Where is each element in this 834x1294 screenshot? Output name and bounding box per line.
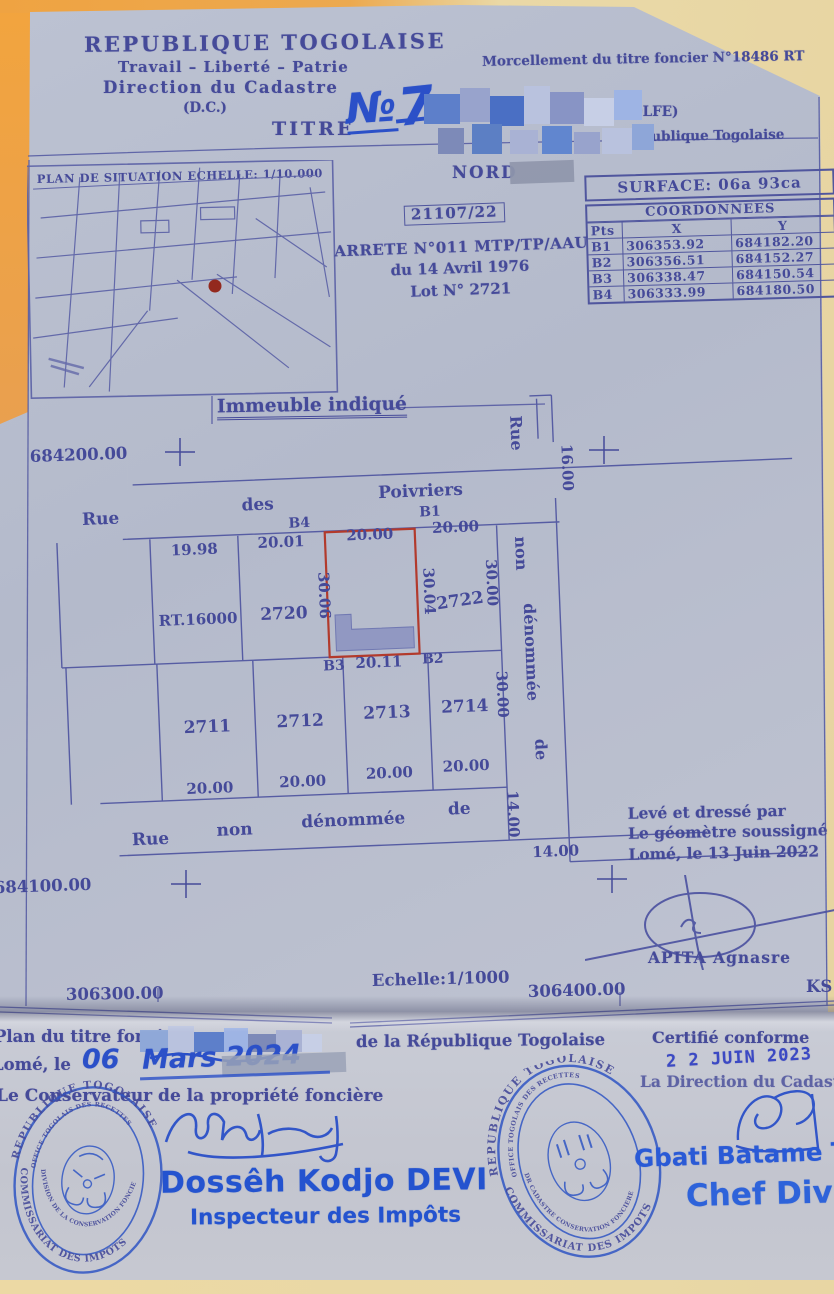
chef-division: Chef Division Cada	[686, 1172, 834, 1213]
arrete-line2: du 14 Avril 1976	[335, 256, 585, 280]
titre-label: TITRE	[272, 120, 354, 140]
dim-30-00-right: 30.00	[492, 670, 512, 718]
devi-name: Dossêh Kodjo DEVI	[160, 1164, 488, 1199]
dim-20-00-r2: 20.00	[186, 778, 234, 798]
dim-20-00-r2: 20.00	[442, 756, 490, 776]
street-top-poivriers: Poivriers	[378, 480, 463, 503]
building-footprint	[335, 612, 414, 651]
certifie-conforme: Certifié conforme	[652, 1030, 809, 1047]
cell-x: 306353.92	[622, 235, 731, 253]
redaction-box-nord	[510, 160, 575, 184]
cell-y: 684180.50	[732, 281, 834, 299]
map-red-dot	[209, 280, 222, 293]
cell-pt: B2	[588, 254, 622, 270]
dim-20-00: 20.00	[432, 517, 480, 537]
dim-16-00: 16.00	[557, 444, 577, 492]
lot-2714: 2714	[441, 696, 489, 718]
coordinates-block: SURFACE: 06a 93ca COORDONNEES Pts X Y B1…	[584, 169, 834, 305]
street-top-des: des	[241, 494, 274, 515]
lot-2720: 2720	[260, 603, 308, 625]
cell-x: 306333.99	[623, 283, 732, 301]
dossier-number: 21107/22	[404, 202, 505, 225]
street-top-rue: Rue	[82, 509, 120, 530]
surveyor-name: APITA Agnasre	[648, 950, 791, 966]
header-pts: Pts	[588, 222, 622, 238]
dim-20-00-r2: 20.00	[366, 763, 414, 783]
street-right-rue: Rue	[506, 415, 526, 451]
scale-label: Echelle:1/1000	[372, 967, 510, 990]
motto: Travail – Liberté – Patrie	[118, 60, 349, 76]
surface-box: SURFACE: 06a 93ca	[584, 169, 834, 202]
de-la-republique: de la République Togolaise	[356, 1031, 605, 1050]
lot-2712: 2712	[276, 710, 324, 732]
lot-2711: 2711	[183, 716, 231, 738]
point-b4: B4	[288, 515, 310, 532]
dc-abbr: (D.C.)	[183, 101, 227, 115]
redaction-mosaic-title	[424, 84, 664, 162]
dim-19-98: 19.98	[170, 540, 218, 560]
cell-x: 306338.47	[623, 267, 732, 285]
cell-x: 306356.51	[622, 251, 731, 269]
street-right-non: non	[511, 536, 531, 571]
surveyor-line3: Lomé, le 13 Juin 2022	[628, 843, 828, 863]
lot-2722: 2722	[435, 588, 485, 615]
dim-14-00-bottom: 14.00	[532, 841, 580, 861]
cell-pt: B3	[589, 270, 623, 286]
tick-ks: KS	[806, 977, 832, 996]
arrete-block: ARRETE N°011 MTP/TP/AAU du 14 Avril 1976…	[334, 236, 586, 303]
devi-title: Inspecteur des Impôts	[190, 1205, 461, 1230]
dim-20-11: 20.11	[355, 652, 403, 672]
header-x: X	[622, 219, 731, 237]
dim-30-00: 30.00	[482, 559, 502, 607]
nord-label: NORD	[452, 164, 517, 181]
tick-684200: 684200.00	[29, 444, 127, 466]
devi-signature	[158, 1100, 388, 1170]
cell-pt: B4	[589, 286, 623, 302]
handwritten-day: 06	[82, 1046, 120, 1074]
titre-number-no: №	[344, 84, 398, 135]
dim-30-06: 30.06	[314, 572, 334, 620]
situation-map: PLAN DE SITUATION ECHELLE: 1/10.000	[27, 160, 339, 400]
cell-y: 684150.54	[732, 265, 834, 283]
dim-30-04: 30.04	[419, 567, 439, 615]
surveyor-line2: Le géomètre soussigné	[628, 823, 828, 843]
header-y: Y	[731, 217, 834, 235]
dim-20-00-r2: 20.00	[279, 771, 327, 791]
street-bottom-denommee: dénommée	[301, 808, 406, 832]
cell-y: 684152.27	[731, 249, 834, 267]
tick-684100: 684100.00	[0, 875, 92, 897]
coordinates-table: COORDONNEES Pts X Y B1 306353.92 684182.…	[585, 198, 834, 305]
surveyor-block: Levé et dressé par Le géomètre soussigné…	[628, 802, 829, 862]
dim-14-00-right: 14.00	[503, 790, 523, 838]
direction-cadastre: Direction du Cadastre	[103, 79, 338, 96]
dim-20-01: 20.01	[257, 532, 305, 552]
point-b3: B3	[323, 658, 345, 675]
street-bottom-de: de	[448, 799, 472, 820]
street-right-denommee: dénommée	[520, 603, 543, 702]
republic-title: REPUBLIQUE TOGOLAISE	[84, 30, 446, 56]
paper-fold-shadow	[0, 996, 834, 1032]
lot-2713: 2713	[363, 702, 411, 724]
cell-pt: B1	[588, 238, 622, 254]
street-bottom-rue: Rue	[131, 829, 169, 850]
surveyor-line1: Levé et dressé par	[628, 802, 828, 822]
point-b2: B2	[422, 651, 444, 668]
street-bottom-non: non	[216, 819, 253, 840]
lot-rt16000: RT.16000	[158, 609, 238, 630]
round-stamp-left: REPUBLIQUE TOGOLAISE OFFICE TOGOLAIS DES…	[0, 1069, 184, 1290]
cell-y: 684182.20	[731, 233, 834, 251]
scanned-cadastral-document: { "header": { "republic": "REPUBLIQUE TO…	[0, 0, 834, 1280]
dim-20-00-red: 20.00	[346, 525, 394, 545]
street-right-de: de	[531, 738, 551, 760]
